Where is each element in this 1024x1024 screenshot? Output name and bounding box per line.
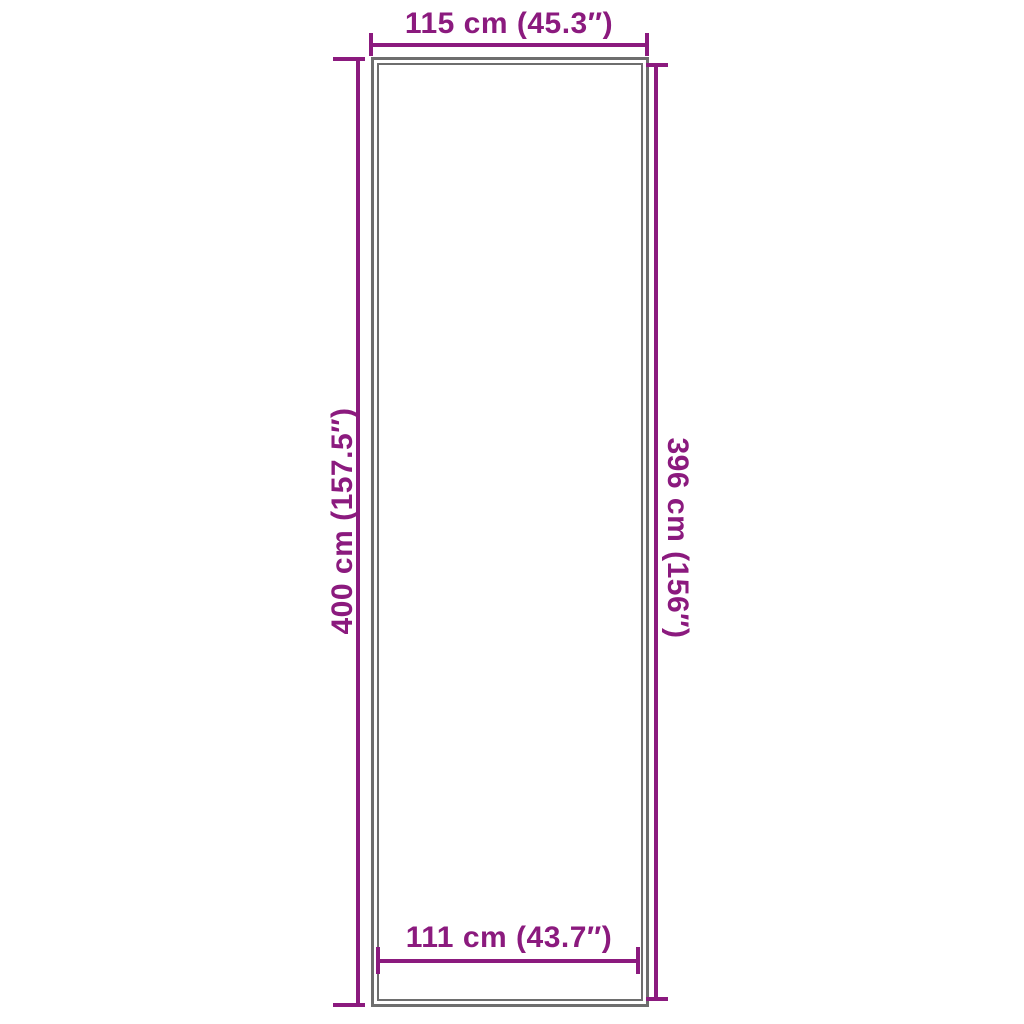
dimension-diagram: 115 cm (45.3″) 400 cm (157.5″) 396 cm (1… — [0, 0, 1024, 1024]
dimension-line-right — [654, 63, 658, 1001]
dimension-line-bottom — [378, 959, 640, 963]
dimension-tick-top-left — [369, 33, 373, 56]
dimension-tick-right-top — [646, 63, 668, 67]
dimension-tick-bottom-left — [376, 947, 380, 974]
dimension-label-right: 396 cm (156″) — [662, 438, 692, 639]
dimension-line-top — [371, 43, 647, 47]
dimension-tick-left-top — [333, 57, 365, 61]
dimension-label-bottom: 111 cm (43.7″) — [406, 923, 613, 953]
dimension-tick-right-bottom — [646, 997, 668, 1001]
dimension-label-top: 115 cm (45.3″) — [405, 9, 613, 39]
dimension-label-left: 400 cm (157.5″) — [328, 407, 358, 634]
product-outline-inner — [377, 63, 643, 1001]
dimension-tick-bottom-right — [636, 947, 640, 974]
dimension-tick-left-bottom — [333, 1003, 365, 1007]
dimension-tick-top-right — [645, 33, 649, 56]
